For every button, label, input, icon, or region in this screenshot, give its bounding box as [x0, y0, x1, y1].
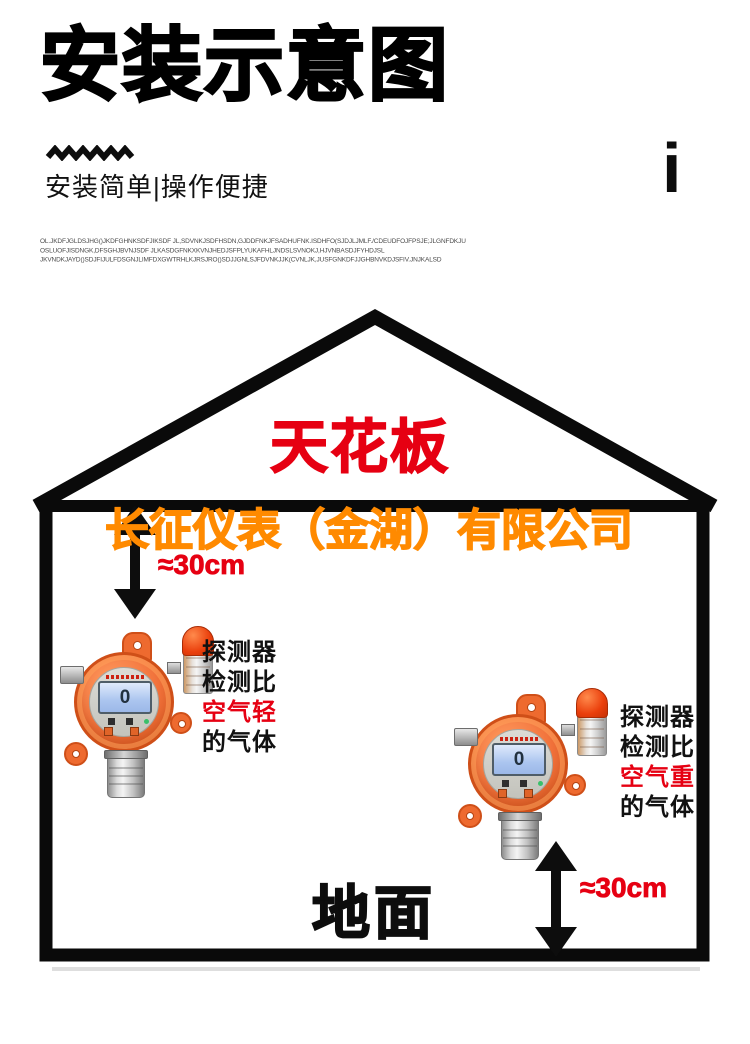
mounting-ear-right: [170, 712, 192, 734]
note-line: 探测器: [202, 638, 277, 668]
alarm-beacon: [570, 688, 614, 760]
beacon-connector: [167, 662, 181, 674]
watermark-text: OL.JKDFJGLDSJHG()JKDFGHNKSDFJIKSDF JL,SD…: [40, 237, 404, 265]
gas-sensor-cylinder: [107, 754, 145, 798]
detector-note-left: 探测器 检测比 空气轻 的气体: [202, 638, 277, 758]
beacon-cylinder: [577, 712, 607, 756]
ceiling-label: 天花板: [270, 400, 450, 484]
note-line-highlight: 空气重: [620, 763, 695, 793]
detector-lcd: 0: [492, 743, 546, 776]
beacon-dome: [576, 688, 608, 718]
note-line: 的气体: [202, 728, 277, 758]
watermark-line: JKVNDKJAYD()SDJFIJULFDSGNJLIMFDXGWTRHLKJ…: [40, 256, 404, 265]
ground-label: 地面: [312, 866, 436, 950]
detector-panel: 0: [89, 667, 159, 737]
distance-arrow-right-icon: [533, 841, 579, 957]
mounting-ear-left: [64, 742, 88, 766]
detector-note-right: 探测器 检测比 空气重 的气体: [620, 703, 695, 823]
mounting-ear-left: [458, 804, 482, 828]
conduit-nut: [454, 728, 478, 746]
mounting-ear-right: [564, 774, 586, 796]
detector-panel: 0: [483, 729, 553, 799]
note-line: 的气体: [620, 793, 695, 823]
beacon-connector: [561, 724, 575, 736]
page-subtitle: 安装简单|操作便捷: [45, 167, 269, 204]
info-i-mark: i: [662, 128, 681, 208]
note-line: 检测比: [620, 733, 695, 763]
detector-buttons: [494, 780, 546, 798]
panel-brand-line: [500, 737, 540, 741]
page-title: 安装示意图: [40, 22, 450, 110]
zigzag-icon: [45, 145, 137, 161]
company-watermark: 长征仪表（金湖）有限公司: [66, 494, 672, 558]
note-line: 探测器: [620, 703, 695, 733]
page: 安装示意图 安装简单|操作便捷 i OL.JKDFJGLDSJHG()JKDFG…: [0, 0, 750, 1044]
detector-buttons: [100, 718, 152, 736]
watermark-line: OSLUOFJISDNGK,DFSGHJBVNJSDF JLKASDGFNKXK…: [40, 246, 404, 255]
watermark-line: OL.JKDFJGLDSJHG()JKDFGHNKSDFJIKSDF JL,SD…: [40, 237, 404, 246]
note-line-highlight: 空气轻: [202, 698, 277, 728]
conduit-nut: [60, 666, 84, 684]
panel-brand-line: [106, 675, 146, 679]
distance-label-right: ≈30cm: [580, 872, 667, 904]
note-line: 检测比: [202, 668, 277, 698]
detector-lcd: 0: [98, 681, 152, 714]
